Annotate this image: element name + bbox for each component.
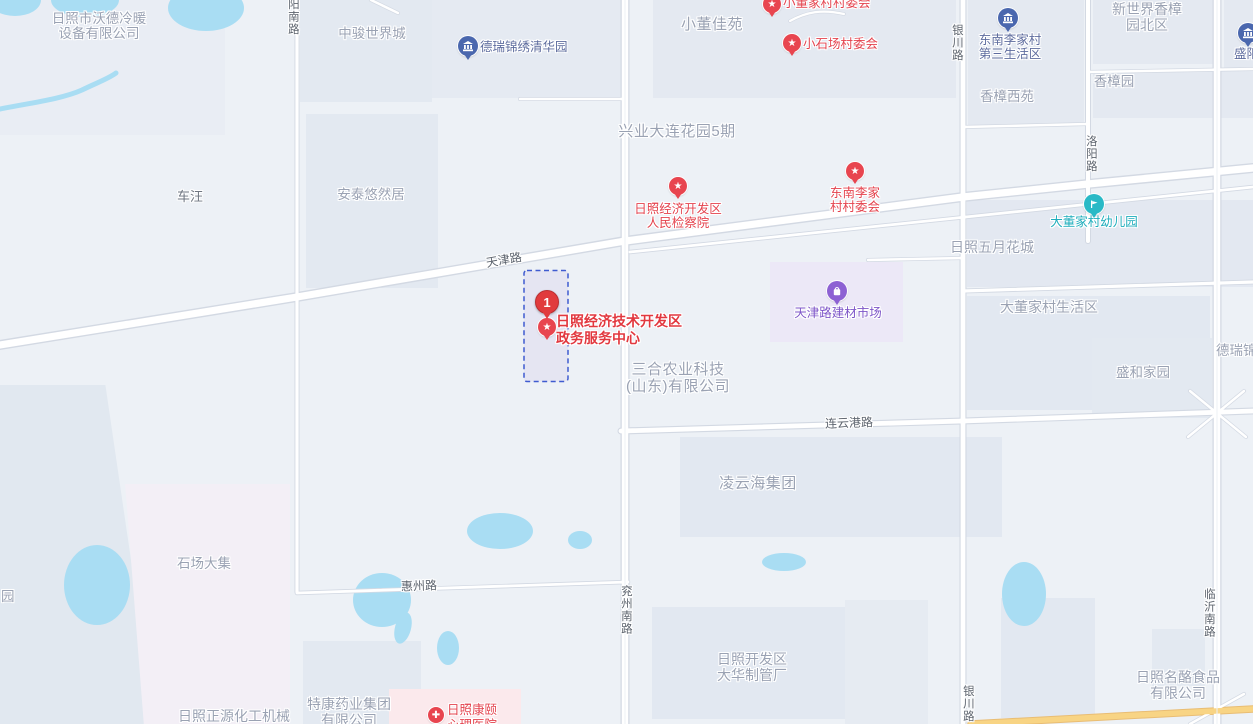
label-tekang: 特康药业集团有限公司 [307, 697, 391, 724]
road-label-huizhoulu: 惠州路 [401, 579, 437, 594]
road-label-yangnanlu: 阳南路 [286, 0, 299, 36]
cross-icon: ✚ [428, 707, 444, 723]
committee-pin-icon[interactable]: ★ [783, 34, 801, 52]
road-label-yinchuanlu-north: 银川路 [950, 24, 963, 62]
kindergarten-pin-icon[interactable] [1084, 194, 1104, 214]
market-pin-icon[interactable] [827, 281, 847, 301]
building-icon [1238, 23, 1253, 43]
label-shichang-daji: 石场大集 [177, 556, 231, 571]
label-yuan-partial: 园 [1, 589, 15, 604]
star-icon: ★ [669, 177, 687, 195]
label-wode: 日照市沃德冷暖设备有限公司 [52, 11, 147, 41]
label-xiaodong-jiayuan: 小董佳苑 [681, 17, 743, 34]
estate-pin-icon[interactable] [1238, 23, 1253, 43]
government-pin-icon[interactable]: ★ [669, 177, 687, 195]
committee-pin-icon[interactable]: ★ [846, 162, 864, 180]
road-label-yanzhounanlu: 兖州南路 [619, 585, 632, 635]
label-selected-place[interactable]: 日照经济技术开发区政务服务中心 [556, 313, 682, 347]
label-shenghe: 盛和家园 [1116, 365, 1170, 380]
building-icon [998, 8, 1018, 28]
label-xiaodong-cmte[interactable]: 小董家村村委会 [783, 0, 871, 10]
label-dahua: 日照开发区大华制管厂 [717, 652, 787, 683]
label-dadongjia-shenghuoqu: 大董家村生活区 [1000, 300, 1098, 316]
label-kangyi[interactable]: 日照康颐心理医院 [447, 703, 497, 724]
marker-number: 1 [535, 290, 559, 314]
label-zhengyuan: 日照正源化工机械 [178, 709, 290, 724]
estate-pin-icon[interactable] [998, 8, 1018, 28]
label-xingye: 兴业大连花园5期 [618, 124, 735, 141]
estate-pin-icon[interactable] [458, 36, 478, 56]
road-label-luoyanglu: 洛阳路 [1084, 135, 1097, 173]
label-sanhe: 三合农业科技(山东)有限公司 [626, 362, 730, 396]
star-icon: ★ [783, 34, 801, 52]
hospital-icon[interactable]: ✚ [428, 707, 444, 723]
committee-pin-icon[interactable]: ★ [763, 0, 781, 13]
star-icon: ★ [846, 162, 864, 180]
flag-icon [1084, 194, 1104, 214]
label-dongnan-cmte[interactable]: 东南李家村村委会 [830, 186, 880, 214]
label-antai: 安泰悠然居 [337, 187, 405, 202]
label-zhongjun: 中骏世界城 [338, 26, 406, 41]
shopping-bag-icon [827, 281, 847, 301]
label-minglao: 日照名酪食品有限公司 [1136, 670, 1220, 701]
road-label-linyinanlu: 临沂南路 [1202, 588, 1215, 638]
label-xiangzhang-xiyuan: 香樟西苑 [980, 89, 1034, 104]
label-xinshijie: 新世界香樟园北区 [1112, 2, 1182, 33]
road-label-yinchuanlu-south: 银川路 [961, 685, 974, 723]
star-icon: ★ [763, 0, 781, 13]
result-marker-1[interactable]: 1 [535, 290, 559, 314]
map-canvas[interactable]: 阳南路 天津路 银川路 洛阳路 连云港路 惠州路 兖州南路 银川路 临沂南路 日… [0, 0, 1253, 724]
label-derui-qinghua[interactable]: 德瑞锦绣清华园 [480, 40, 568, 54]
building-icon [458, 36, 478, 56]
label-xiaoshichang-cmte[interactable]: 小石场村委会 [803, 37, 878, 51]
label-chewang: 车汪 [177, 190, 203, 205]
label-xiangzhang-yuan: 香樟园 [1094, 74, 1135, 89]
label-wuyue: 日照五月花城 [950, 240, 1034, 256]
road-label-lianyungang: 连云港路 [825, 416, 873, 431]
label-derui-partial: 德瑞锦 [1216, 343, 1253, 358]
label-dongnan-shenghuoqu[interactable]: 东南李家村第三生活区 [979, 33, 1042, 61]
label-lingyunhai: 凌云海集团 [719, 476, 797, 493]
label-jianchayuan[interactable]: 日照经济开发区人民检察院 [634, 202, 722, 230]
